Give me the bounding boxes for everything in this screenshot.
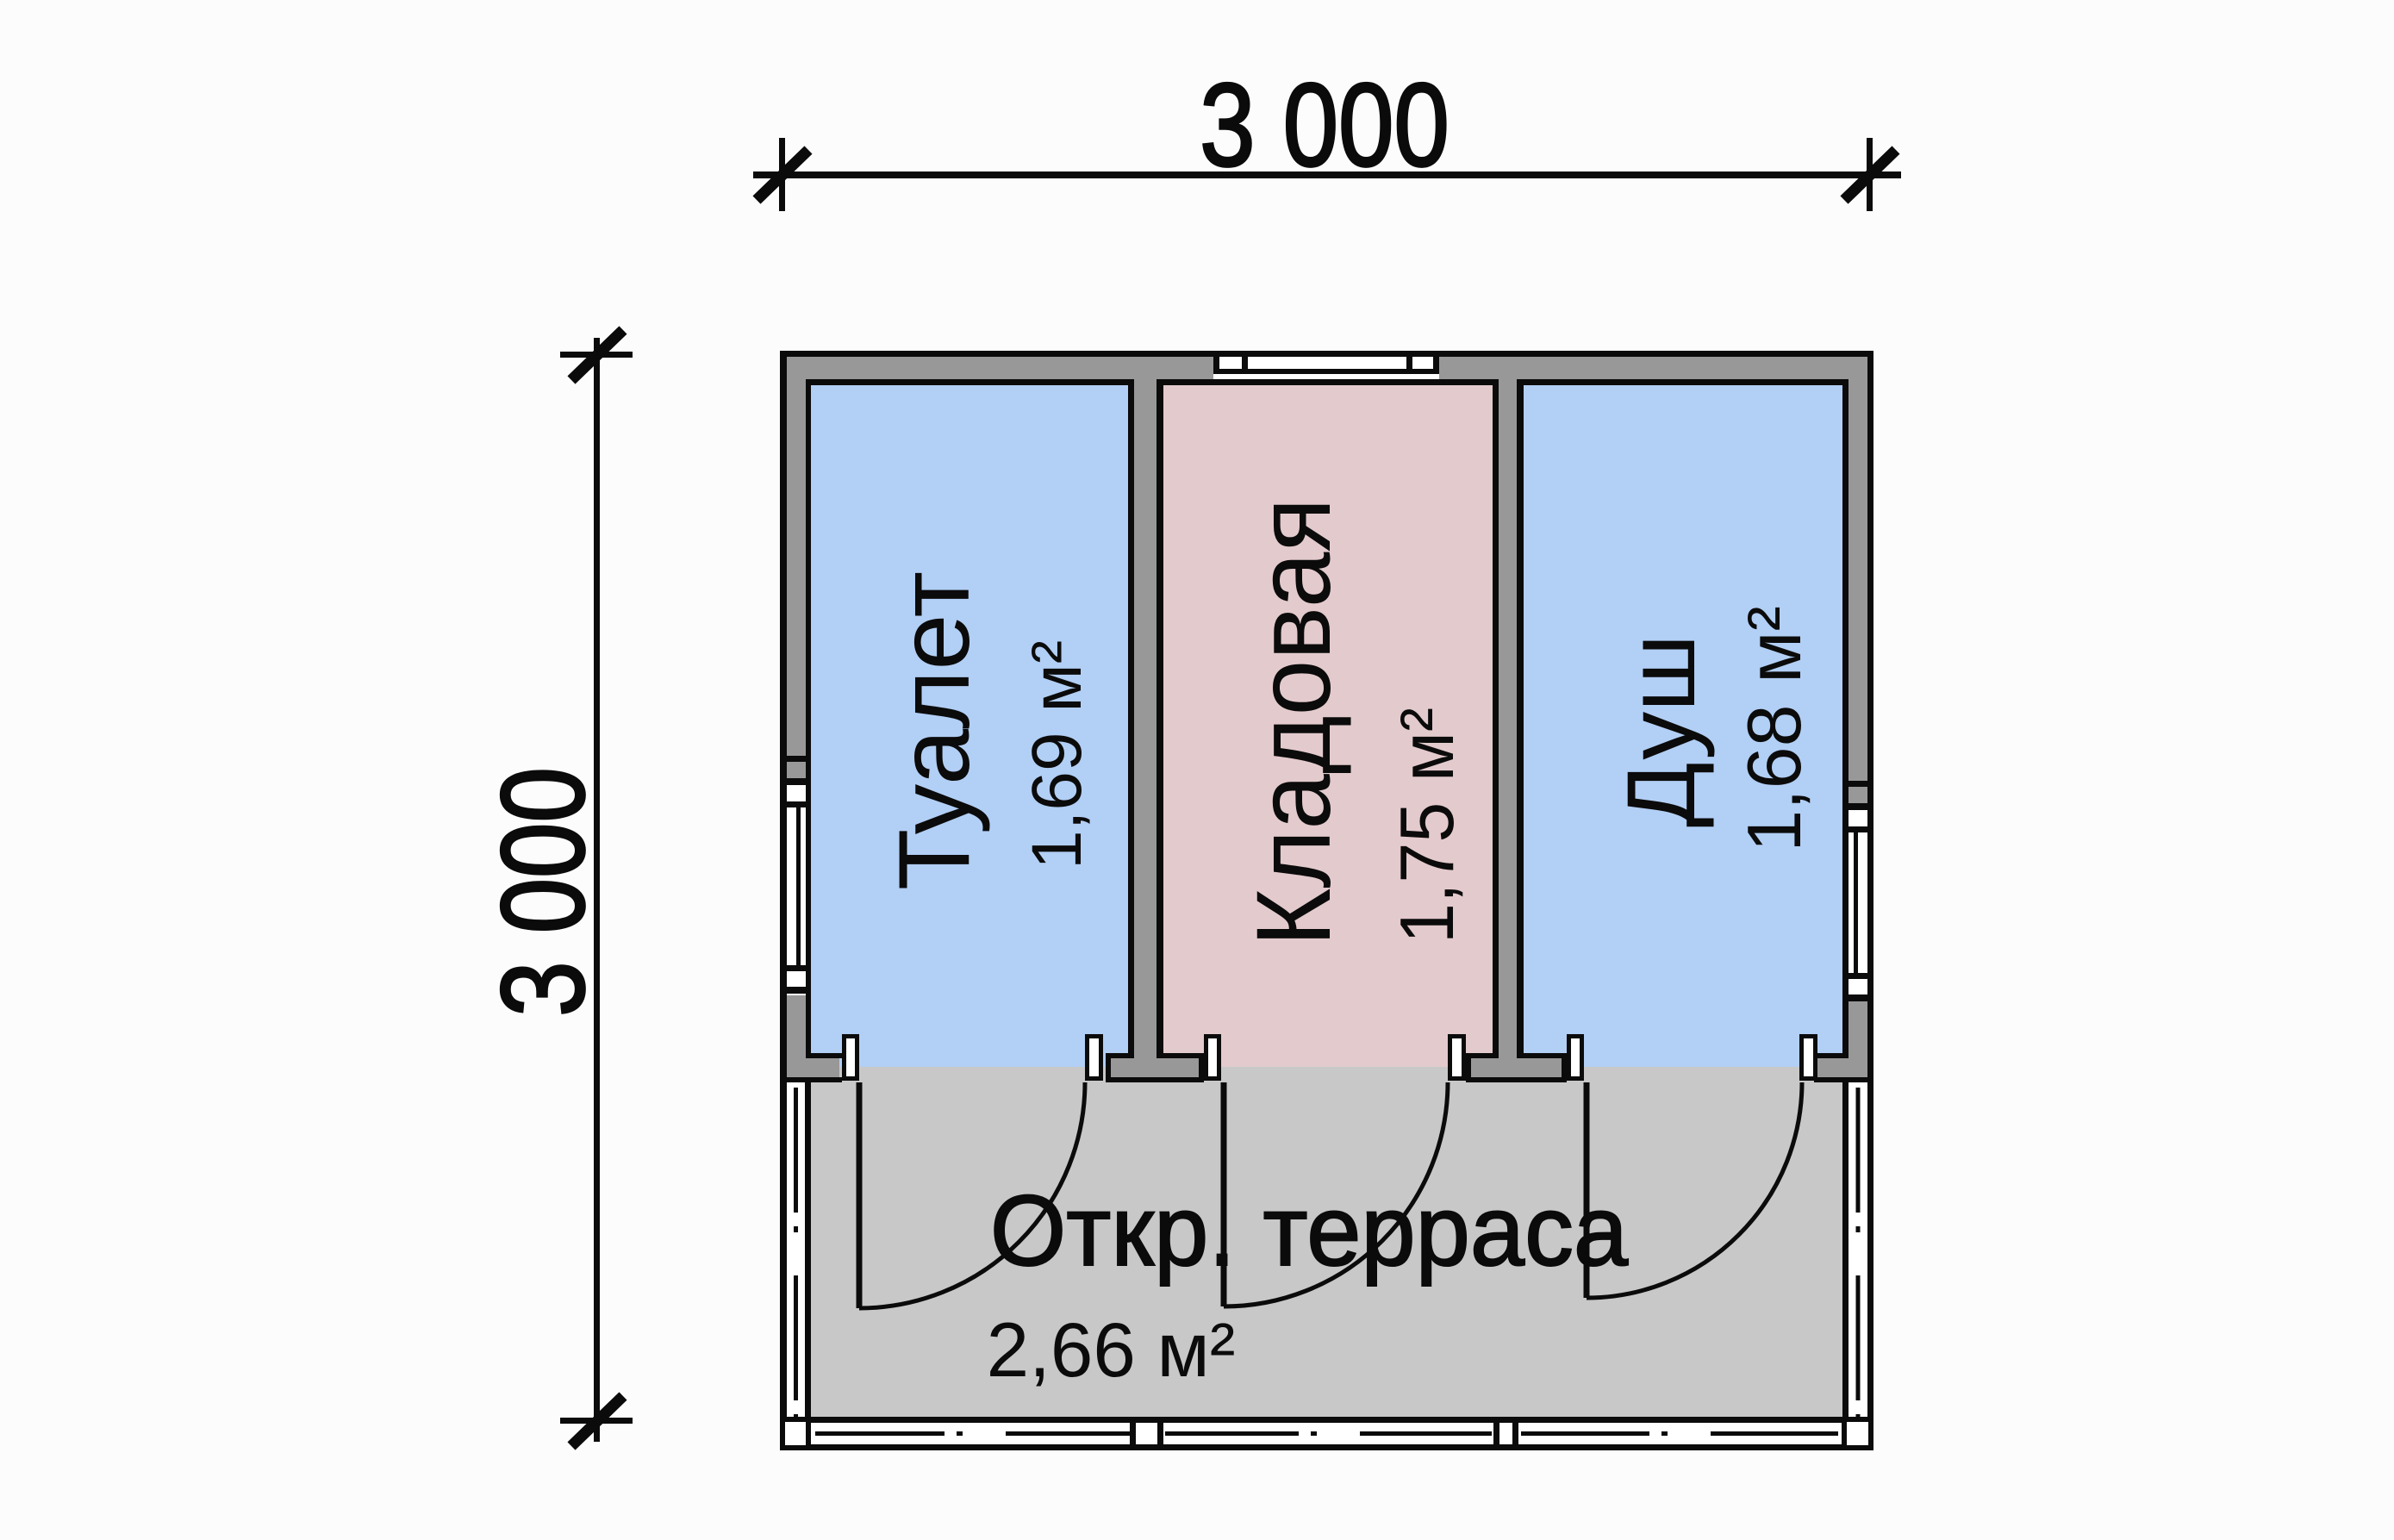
svg-text:1,68 м²: 1,68 м² [1731,606,1817,852]
svg-text:Откр. терраса: Откр. терраса [990,1175,1628,1287]
svg-text:2,66 м²: 2,66 м² [987,1306,1236,1393]
svg-text:3 000: 3 000 [477,767,608,1017]
svg-text:1,75 м²: 1,75 м² [1385,708,1469,944]
svg-text:Туалет: Туалет [877,571,990,890]
svg-text:1,69 м²: 1,69 м² [1018,640,1096,870]
svg-text:Душ: Душ [1607,634,1715,827]
svg-text:Кладовая: Кладовая [1235,498,1353,947]
svg-text:3 000: 3 000 [1200,59,1449,190]
